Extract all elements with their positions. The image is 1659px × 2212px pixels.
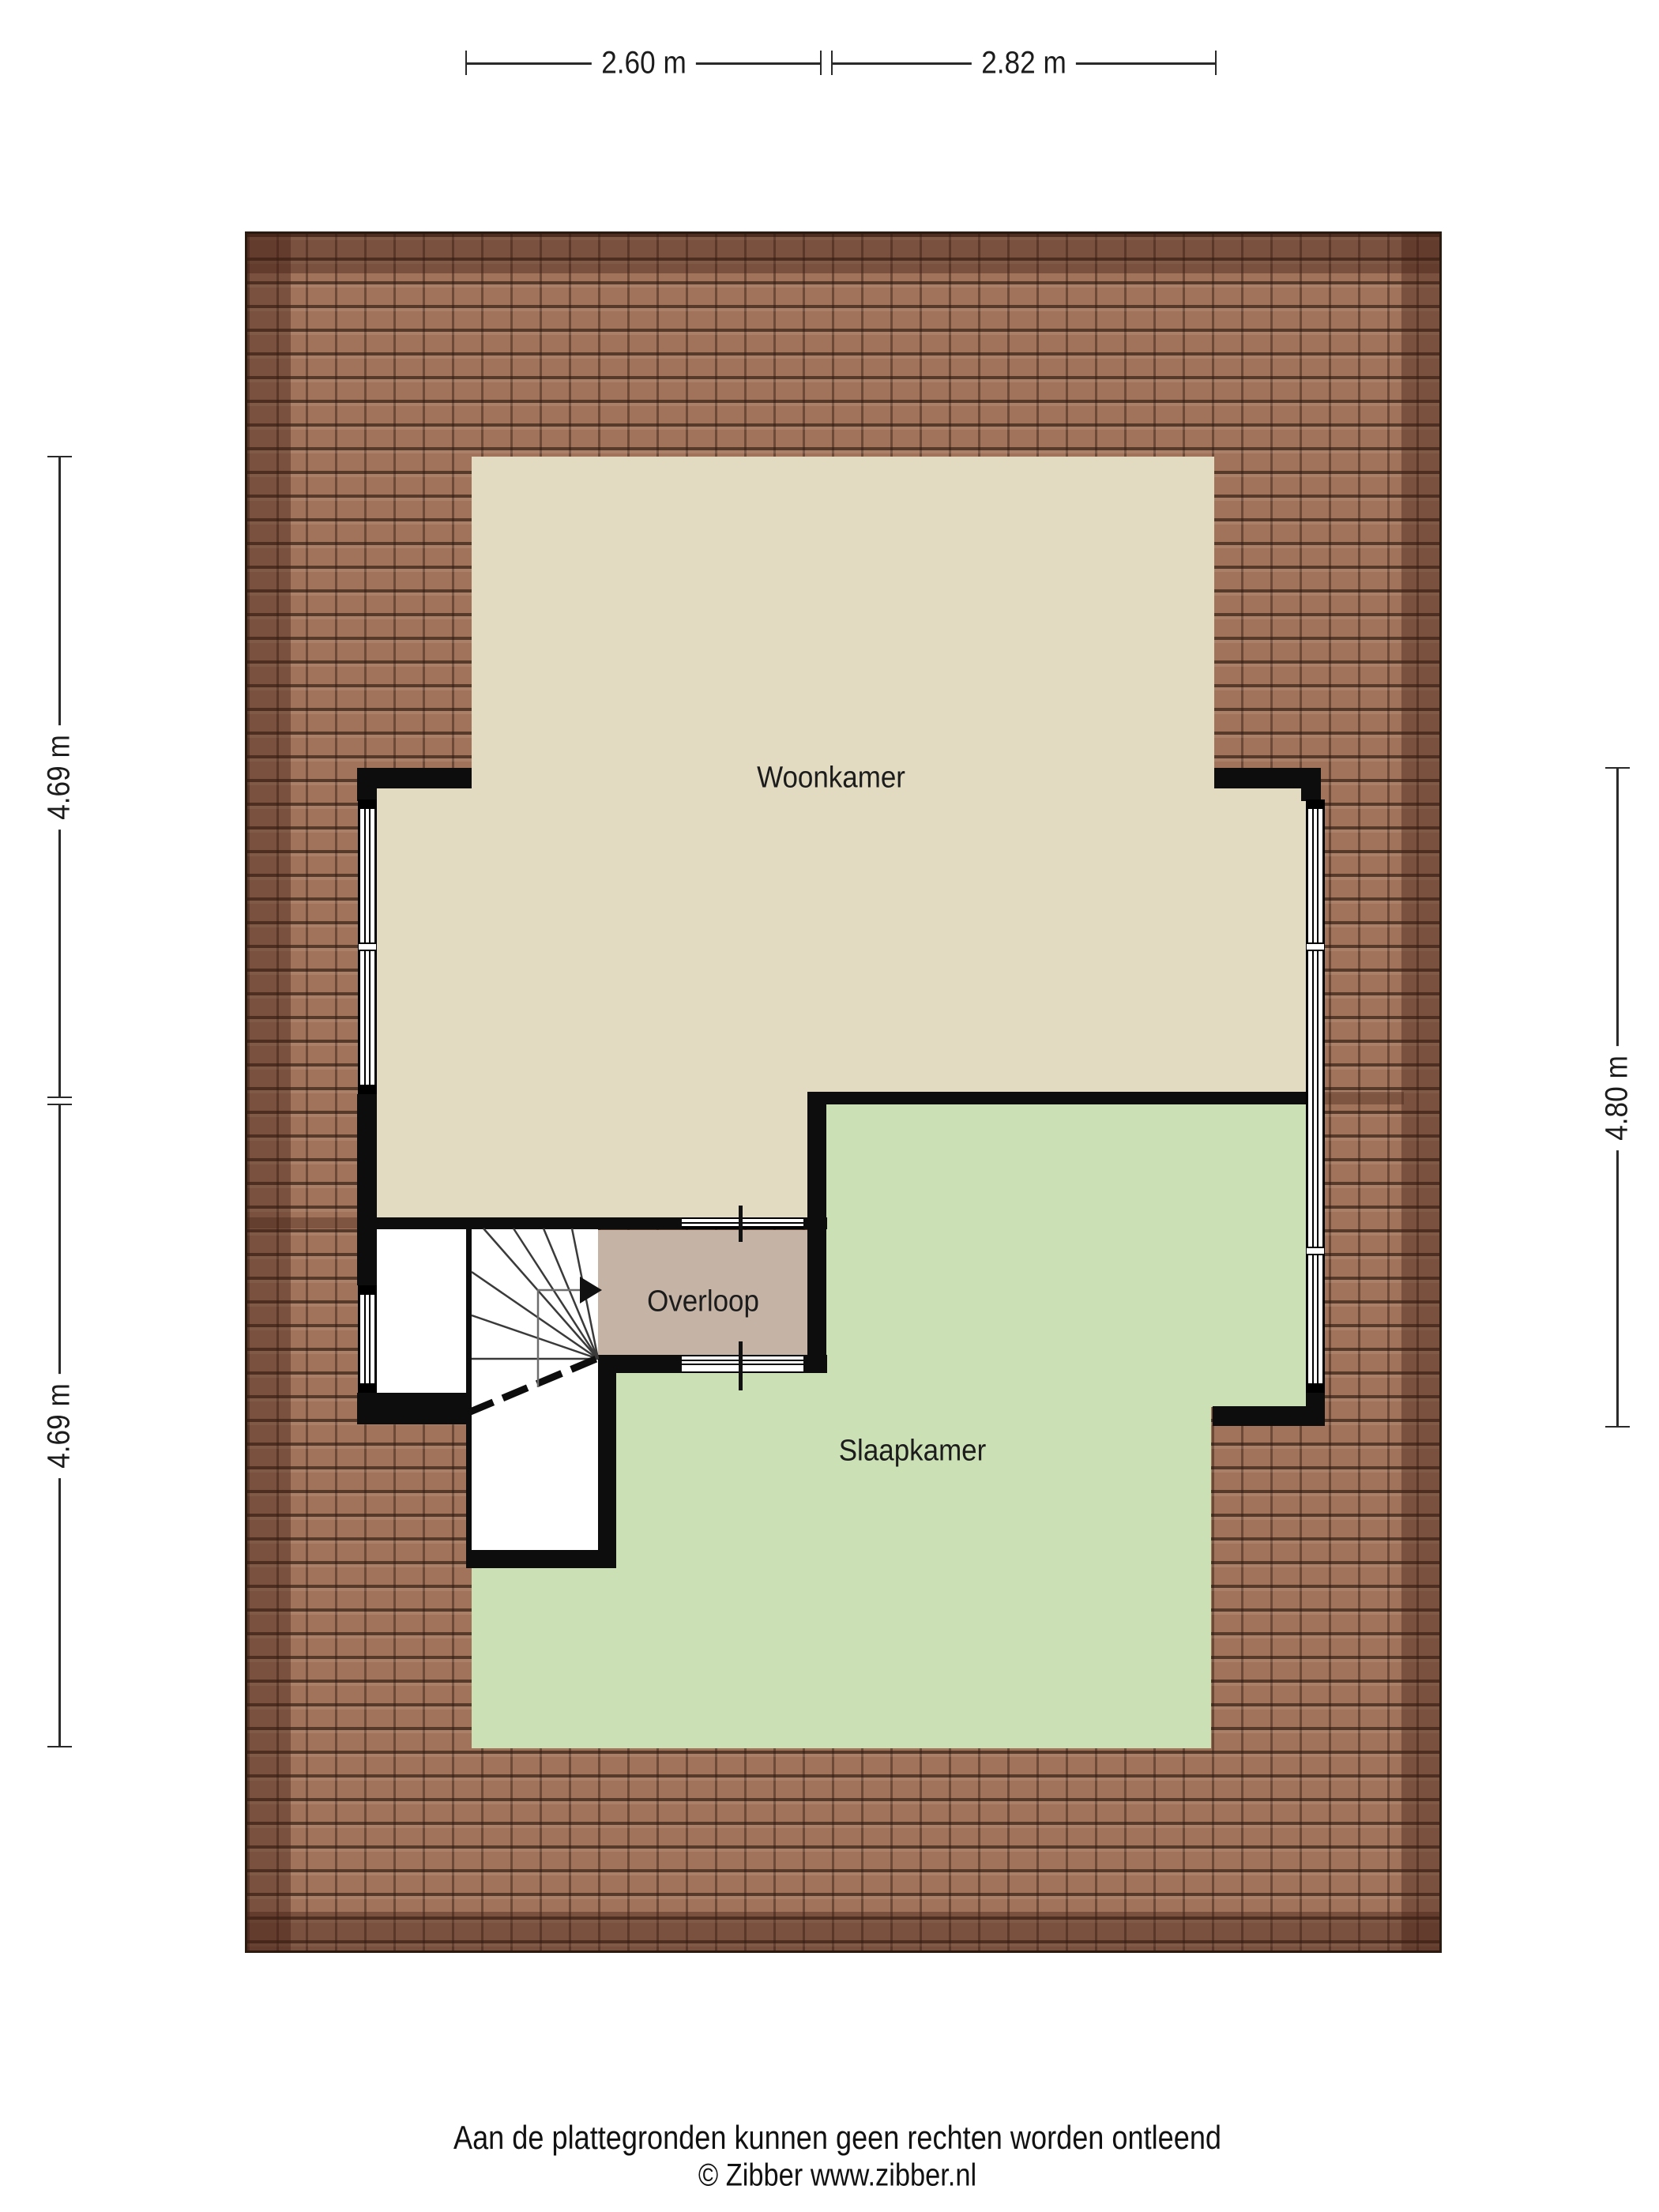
dimension-tick xyxy=(47,1097,72,1098)
stairs-graphics xyxy=(0,0,1659,2212)
dimension-tick xyxy=(47,1104,72,1105)
room-label-slaapkamer: Slaapkamer xyxy=(839,1435,987,1469)
dimension-label-top-2: 2.82 m xyxy=(972,46,1076,81)
dimension-tick xyxy=(1605,1426,1630,1428)
dimension-tick xyxy=(465,51,467,75)
dimension-tick xyxy=(1215,51,1217,75)
floor-plan-canvas: Woonkamer Overloop Slaapkamer 2.60 m 2.8… xyxy=(0,0,1659,2212)
dimension-label-top-1: 2.60 m xyxy=(592,46,696,81)
dimension-tick xyxy=(47,1746,72,1747)
dimension-label-left-2: 4.69 m xyxy=(42,1374,77,1478)
footer-disclaimer: Aan de plattegronden kunnen geen rechten… xyxy=(453,2119,1221,2157)
dimension-tick xyxy=(47,456,72,457)
stair-direction-arrow-icon xyxy=(580,1277,602,1303)
dimension-tick xyxy=(831,51,833,75)
stair-cut-line xyxy=(468,1359,596,1413)
dimension-tick xyxy=(820,51,822,75)
footer-copyright: © Zibber www.zibber.nl xyxy=(698,2158,976,2194)
room-label-woonkamer: Woonkamer xyxy=(757,762,905,796)
dimension-label-right: 4.80 m xyxy=(1600,1046,1635,1150)
dimension-tick xyxy=(1605,767,1630,769)
room-label-overloop: Overloop xyxy=(647,1285,759,1319)
stair-treads xyxy=(472,1228,598,1359)
dimension-label-left-1: 4.69 m xyxy=(42,725,77,829)
